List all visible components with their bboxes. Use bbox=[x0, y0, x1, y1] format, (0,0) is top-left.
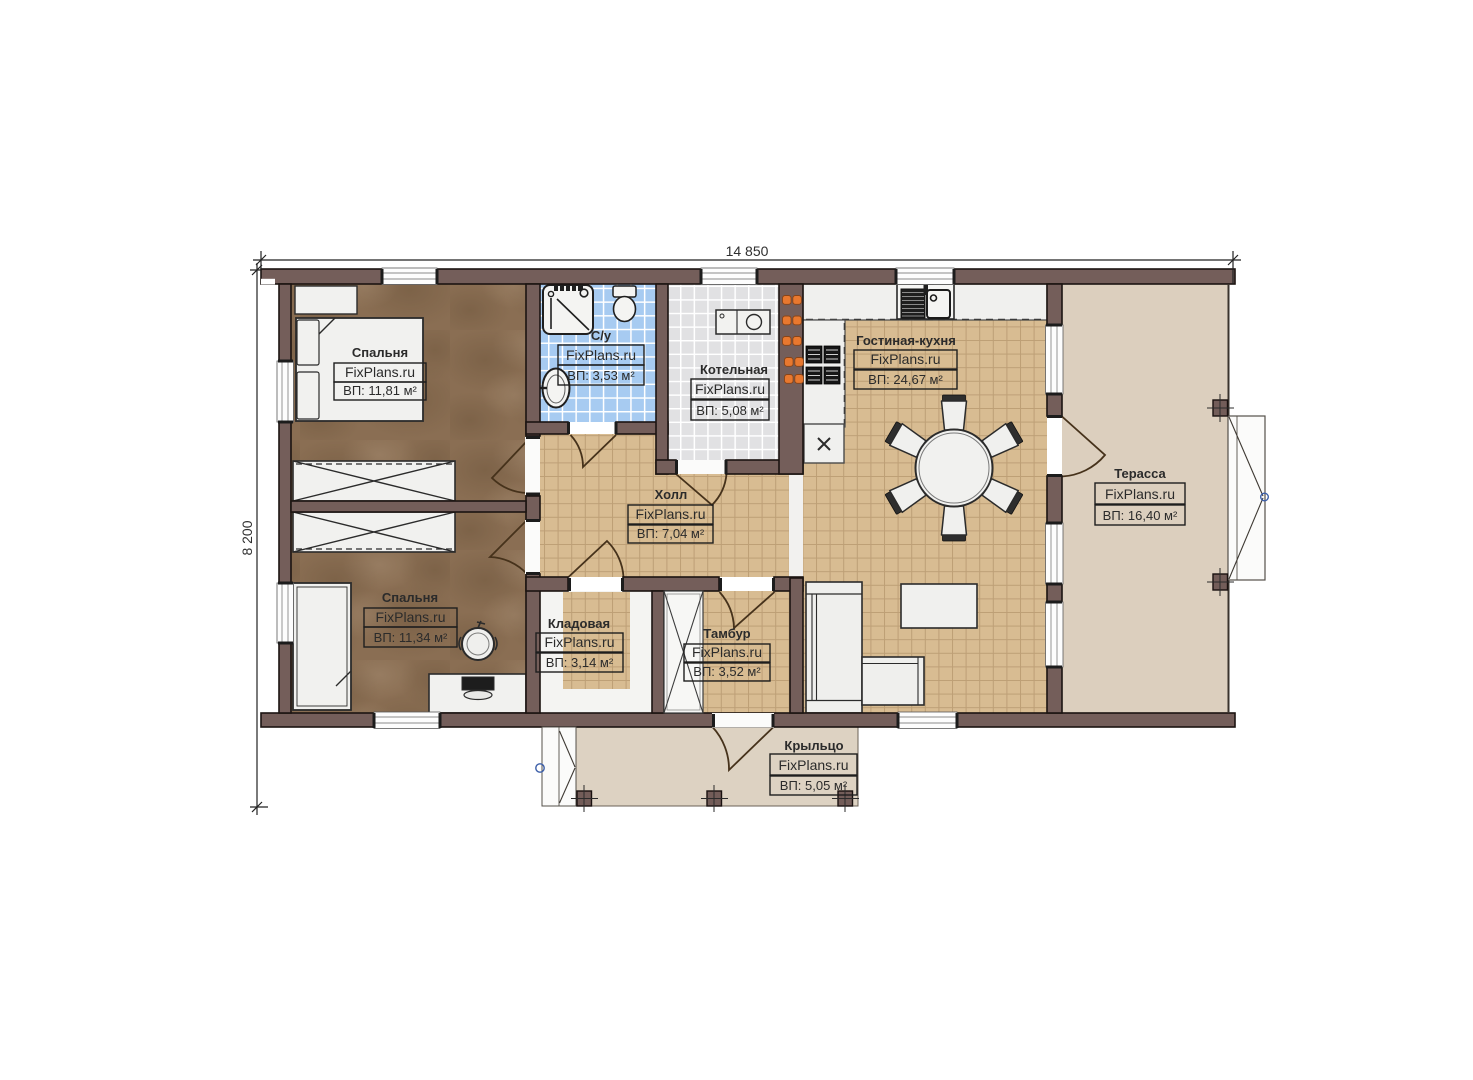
svg-text:FixPlans.ru: FixPlans.ru bbox=[566, 347, 636, 363]
svg-text:8 200: 8 200 bbox=[239, 520, 255, 555]
svg-text:ВП: 24,67 м²: ВП: 24,67 м² bbox=[868, 372, 943, 387]
svg-text:Спальня: Спальня bbox=[382, 590, 438, 605]
svg-text:Спальня: Спальня bbox=[352, 345, 408, 360]
svg-text:Кладовая: Кладовая bbox=[548, 616, 610, 631]
svg-text:FixPlans.ru: FixPlans.ru bbox=[692, 644, 762, 660]
svg-text:Холл: Холл bbox=[655, 487, 688, 502]
svg-text:FixPlans.ru: FixPlans.ru bbox=[345, 364, 415, 380]
svg-text:Гостиная-кухня: Гостиная-кухня bbox=[856, 333, 956, 348]
svg-text:С/у: С/у bbox=[591, 328, 612, 343]
svg-text:ВП: 3,53 м²: ВП: 3,53 м² bbox=[567, 368, 635, 383]
svg-text:FixPlans.ru: FixPlans.ru bbox=[635, 506, 705, 522]
svg-text:ВП: 3,14 м²: ВП: 3,14 м² bbox=[546, 655, 614, 670]
svg-text:FixPlans.ru: FixPlans.ru bbox=[870, 351, 940, 367]
svg-text:FixPlans.ru: FixPlans.ru bbox=[375, 609, 445, 625]
svg-text:FixPlans.ru: FixPlans.ru bbox=[778, 757, 848, 773]
svg-text:Крыльцо: Крыльцо bbox=[784, 738, 843, 753]
svg-text:FixPlans.ru: FixPlans.ru bbox=[695, 381, 765, 397]
svg-text:FixPlans.ru: FixPlans.ru bbox=[544, 634, 614, 650]
svg-text:ВП: 5,08 м²: ВП: 5,08 м² bbox=[696, 403, 764, 418]
svg-text:FixPlans.ru: FixPlans.ru bbox=[1105, 486, 1175, 502]
svg-text:Терасса: Терасса bbox=[1114, 466, 1166, 481]
svg-text:ВП: 16,40 м²: ВП: 16,40 м² bbox=[1103, 508, 1178, 523]
svg-text:ВП: 11,81 м²: ВП: 11,81 м² bbox=[343, 383, 417, 398]
svg-text:Котельная: Котельная bbox=[700, 362, 768, 377]
svg-text:ВП: 3,52 м²: ВП: 3,52 м² bbox=[693, 664, 761, 679]
svg-text:ВП: 5,05 м²: ВП: 5,05 м² bbox=[780, 778, 848, 793]
svg-text:ВП: 7,04 м²: ВП: 7,04 м² bbox=[637, 526, 705, 541]
svg-text:ВП: 11,34 м²: ВП: 11,34 м² bbox=[374, 630, 448, 645]
svg-text:14 850: 14 850 bbox=[726, 243, 769, 259]
svg-text:Тамбур: Тамбур bbox=[703, 626, 750, 641]
